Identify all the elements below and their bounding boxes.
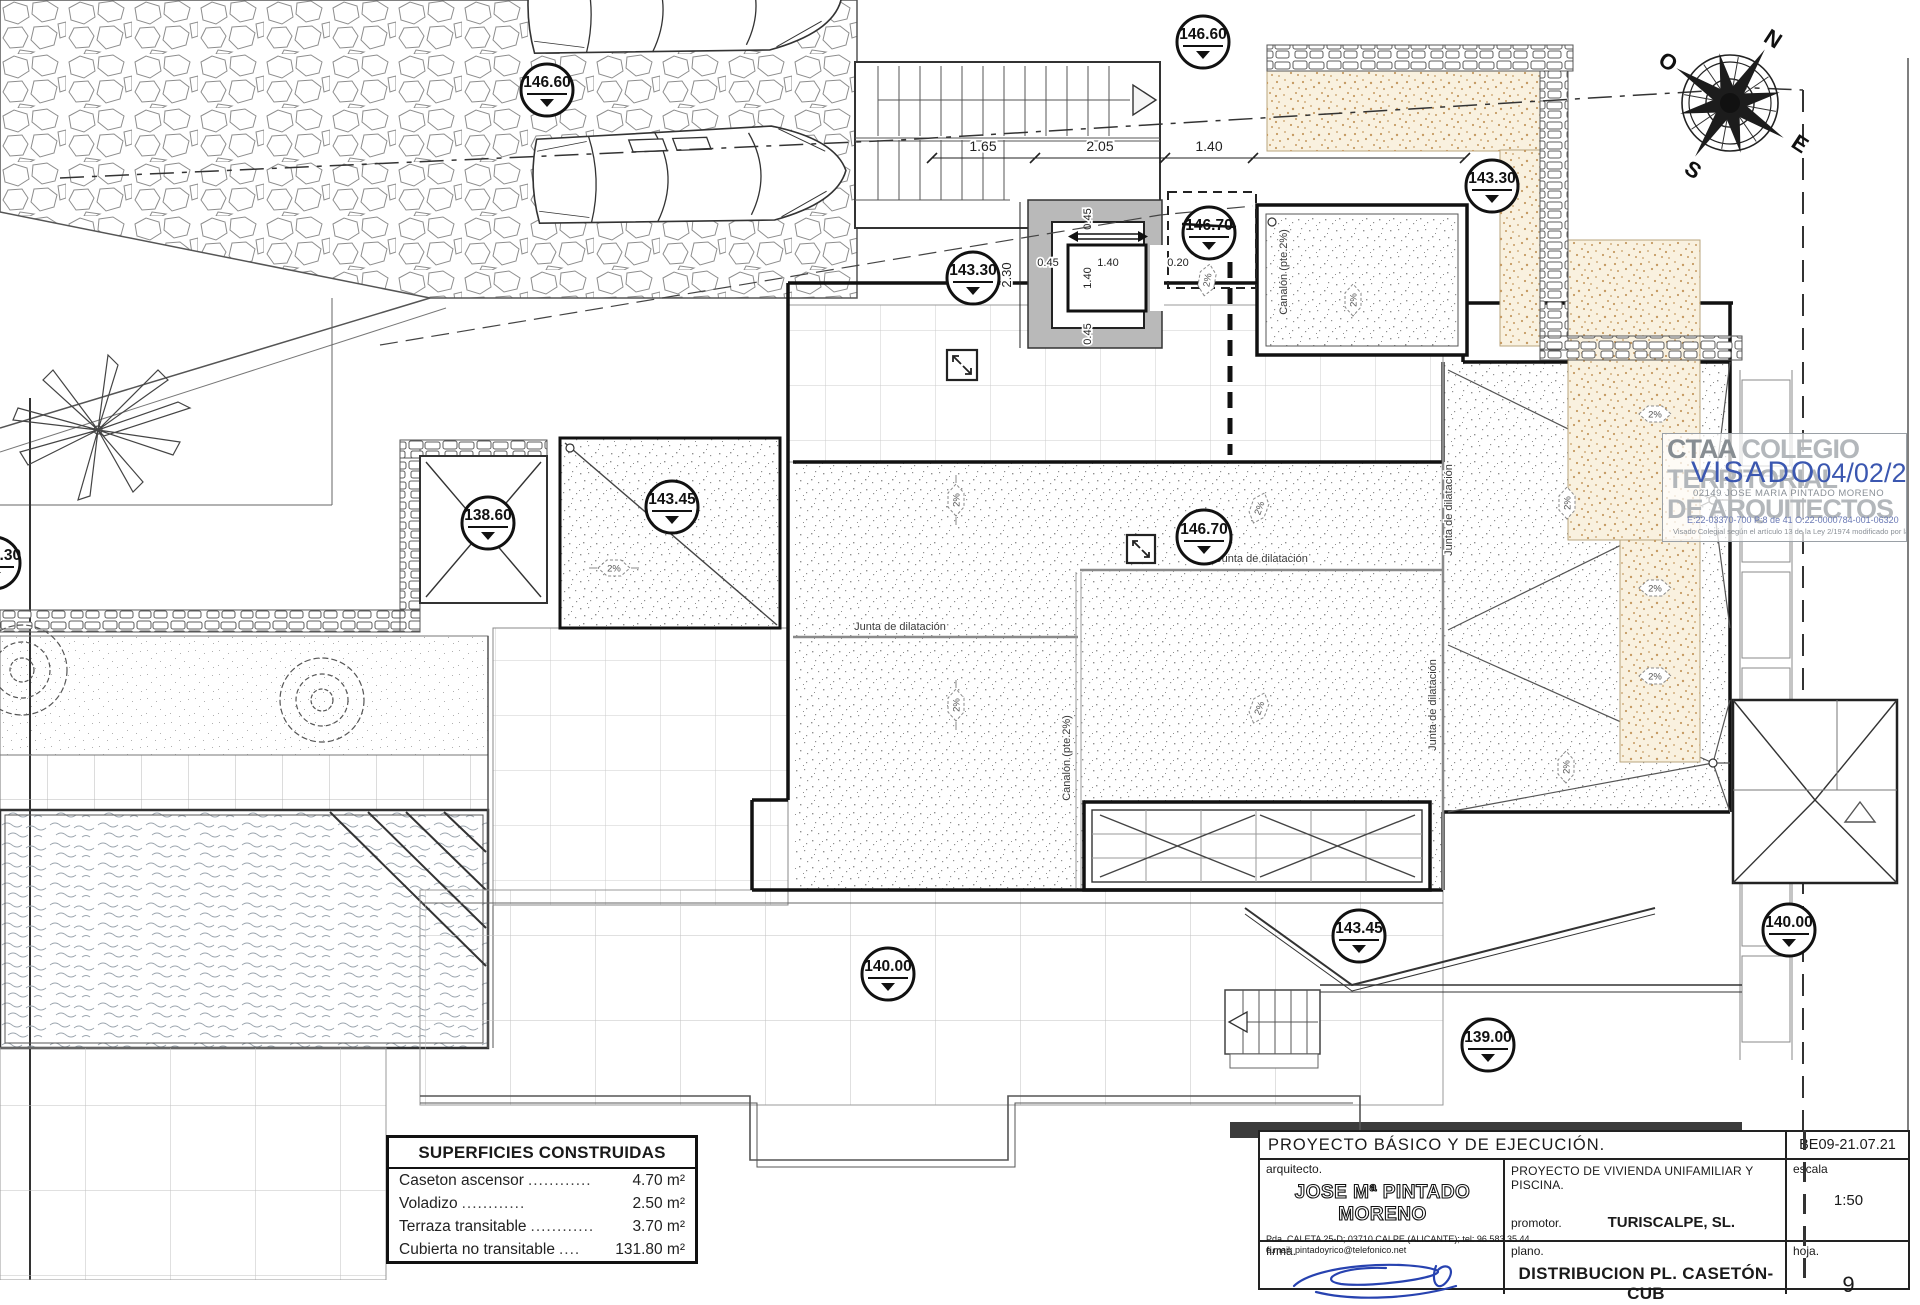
stamp-refs: E:22-03370-700 P:8 de 41 O:22-0000784-00…	[1663, 515, 1906, 525]
area-label: Terraza transitable	[399, 1218, 527, 1236]
svg-text:143.30: 143.30	[949, 262, 996, 279]
area-label: Cubierta no transitable	[399, 1241, 555, 1259]
junta-label: Junta de dilatación	[854, 621, 946, 633]
junta-label: Junta de dilatación	[1216, 553, 1308, 565]
svg-text:138.60: 138.60	[464, 507, 511, 524]
svg-text:146.70: 146.70	[1180, 521, 1227, 538]
svg-text:2%: 2%	[1648, 672, 1662, 683]
stamp-visado-word: VISADO	[1691, 456, 1816, 490]
areas-row: Voladizo ............ 2.50 m²	[389, 1192, 695, 1215]
svg-text:146.60: 146.60	[523, 74, 570, 91]
level-marker: 140.00	[862, 948, 914, 1000]
dim-value: 2.05	[1086, 138, 1113, 154]
svg-text:140.00: 140.00	[864, 958, 911, 975]
level-marker: 143.45	[646, 481, 698, 533]
compass-s: S	[1680, 155, 1706, 184]
area-value: 131.80 m²	[615, 1241, 685, 1259]
stamp-collegiate: 02149 JOSE MARIA PINTADO MORENO	[1663, 488, 1906, 499]
hoja-label: hoja.	[1793, 1244, 1904, 1258]
svg-text:146.60: 146.60	[1179, 26, 1226, 43]
level-marker-clipped: 3.30	[0, 537, 21, 589]
level-marker: 146.60	[521, 64, 573, 116]
expansion-icon	[947, 350, 977, 380]
svg-text:2%: 2%	[1648, 584, 1662, 595]
firma-label: firma.	[1266, 1244, 1499, 1258]
project-title: PROYECTO DE VIVIENDA UNIFAMILIAR Y PISCI…	[1511, 1164, 1781, 1192]
areas-table-title: SUPERFICIES CONSTRUIDAS	[389, 1138, 695, 1169]
garden-band	[0, 625, 488, 755]
visado-stamp: CTAA COLEGIO TERRITORIAL DE ARQUITECTOS …	[1662, 433, 1907, 542]
area-label: Caseton ascensor	[399, 1172, 524, 1190]
areas-row: Cubierta no transitable .... 131.80 m²	[389, 1238, 695, 1261]
svg-text:2%: 2%	[952, 493, 963, 507]
dim-elev: 1.40	[1097, 257, 1118, 269]
svg-text:2%: 2%	[1349, 293, 1360, 307]
junta-label-vertical: Junta de dilatación	[1427, 659, 1439, 751]
pool-house-roof	[1733, 700, 1897, 883]
area-dots: ............	[531, 1218, 629, 1236]
area-dots: ............	[462, 1195, 629, 1213]
dim-core-height: 2.30	[999, 262, 1014, 287]
compass-rose: N O E S	[1641, 14, 1818, 191]
floor-plan-drawing: Junta de dilatación Junta de dilatación …	[0, 0, 1920, 1280]
svg-text:2%: 2%	[1563, 496, 1574, 510]
architect-name: JOSE Mª PINTADO MORENO	[1266, 1182, 1499, 1226]
svg-text:3.30: 3.30	[0, 547, 21, 564]
area-dots: ....	[559, 1241, 611, 1259]
dim-value: 1.65	[969, 138, 996, 154]
area-value: 2.50 m²	[632, 1195, 685, 1213]
svg-text:2%: 2%	[607, 564, 621, 575]
stamp-foreground: VISADO 04/02/22 02149 JOSE MARIA PINTADO…	[1663, 434, 1906, 541]
lower-left-pavement	[0, 1048, 386, 1280]
signature	[1286, 1258, 1496, 1302]
area-label: Voladizo	[399, 1195, 458, 1213]
level-marker: 138.60	[462, 497, 514, 549]
stamp-date: 04/02/22	[1816, 458, 1907, 489]
area-value: 4.70 m²	[632, 1172, 685, 1190]
palm-plant	[13, 355, 190, 500]
area-value: 3.70 m²	[632, 1218, 685, 1236]
svg-text:2%: 2%	[1648, 410, 1662, 421]
compass-n: N	[1760, 24, 1787, 54]
svg-text:140.00: 140.00	[1765, 914, 1812, 931]
plano-label: plano.	[1511, 1244, 1781, 1258]
dim-elev: 1.40	[1082, 267, 1094, 288]
svg-text:143.30: 143.30	[1468, 170, 1515, 187]
pool-side-tile-row	[0, 755, 488, 810]
svg-text:143.45: 143.45	[648, 491, 696, 508]
compass-e: E	[1787, 129, 1813, 158]
hoja-number: 9	[1793, 1272, 1904, 1298]
areas-row: Caseton ascensor ............ 4.70 m²	[389, 1169, 695, 1192]
cobblestone-parking-area	[0, 0, 857, 505]
dim-elev: 0.20	[1167, 257, 1188, 269]
dim-value: 1.40	[1195, 138, 1222, 154]
dim-elev: 0.45	[1082, 323, 1094, 344]
promotor-name: TURISCALPE, SL.	[1562, 1214, 1781, 1231]
level-marker: 146.60	[1177, 16, 1229, 68]
level-marker-struck: 146.70	[1182, 207, 1236, 259]
svg-text:2%: 2%	[952, 698, 963, 712]
stamp-legal: Visado Colegial según el artículo 13 de …	[1663, 527, 1906, 536]
areas-row: Terraza transitable ............ 3.70 m²	[389, 1215, 695, 1238]
arquitecto-label: arquitecto.	[1266, 1162, 1499, 1176]
title-block: PROYECTO BÁSICO Y DE EJECUCIÓN. BE09-21.…	[1258, 1130, 1910, 1290]
areas-table: SUPERFICIES CONSTRUIDAS Caseton ascensor…	[386, 1135, 698, 1264]
compass-o: O	[1654, 47, 1682, 77]
level-marker: 139.00	[1462, 1019, 1514, 1071]
area-dots: ............	[528, 1172, 629, 1190]
project-type: PROYECTO BÁSICO Y DE EJECUCIÓN.	[1260, 1132, 1787, 1158]
level-marker: 143.30	[947, 252, 999, 304]
level-marker: 143.30	[1466, 160, 1518, 212]
escala-label: escala	[1793, 1162, 1904, 1176]
dim-elev: 0.45	[1037, 257, 1058, 269]
canalon-label: Canalón (pte.2%)	[1061, 715, 1073, 801]
property-line-overlay	[1803, 1130, 1806, 1280]
svg-text:139.00: 139.00	[1464, 1029, 1511, 1046]
expansion-icon	[1127, 535, 1155, 563]
escala-value: 1:50	[1793, 1192, 1904, 1209]
canalon-label: Canalón (pte.2%)	[1278, 229, 1290, 315]
level-marker: 143.45	[1333, 910, 1385, 962]
level-marker: 140.00	[1763, 904, 1815, 956]
terrace-west-tiles	[493, 628, 788, 905]
svg-text:143.45: 143.45	[1335, 920, 1383, 937]
promotor-label: promotor.	[1511, 1216, 1562, 1230]
pergola-skylight	[1084, 802, 1430, 890]
plano-title: DISTRIBUCION PL. CASETÓN-CUB	[1511, 1264, 1781, 1304]
junta-label-vertical: Junta de dilatación	[1443, 464, 1455, 556]
level-marker: 146.70	[1177, 510, 1231, 564]
svg-text:2%: 2%	[1562, 760, 1573, 774]
